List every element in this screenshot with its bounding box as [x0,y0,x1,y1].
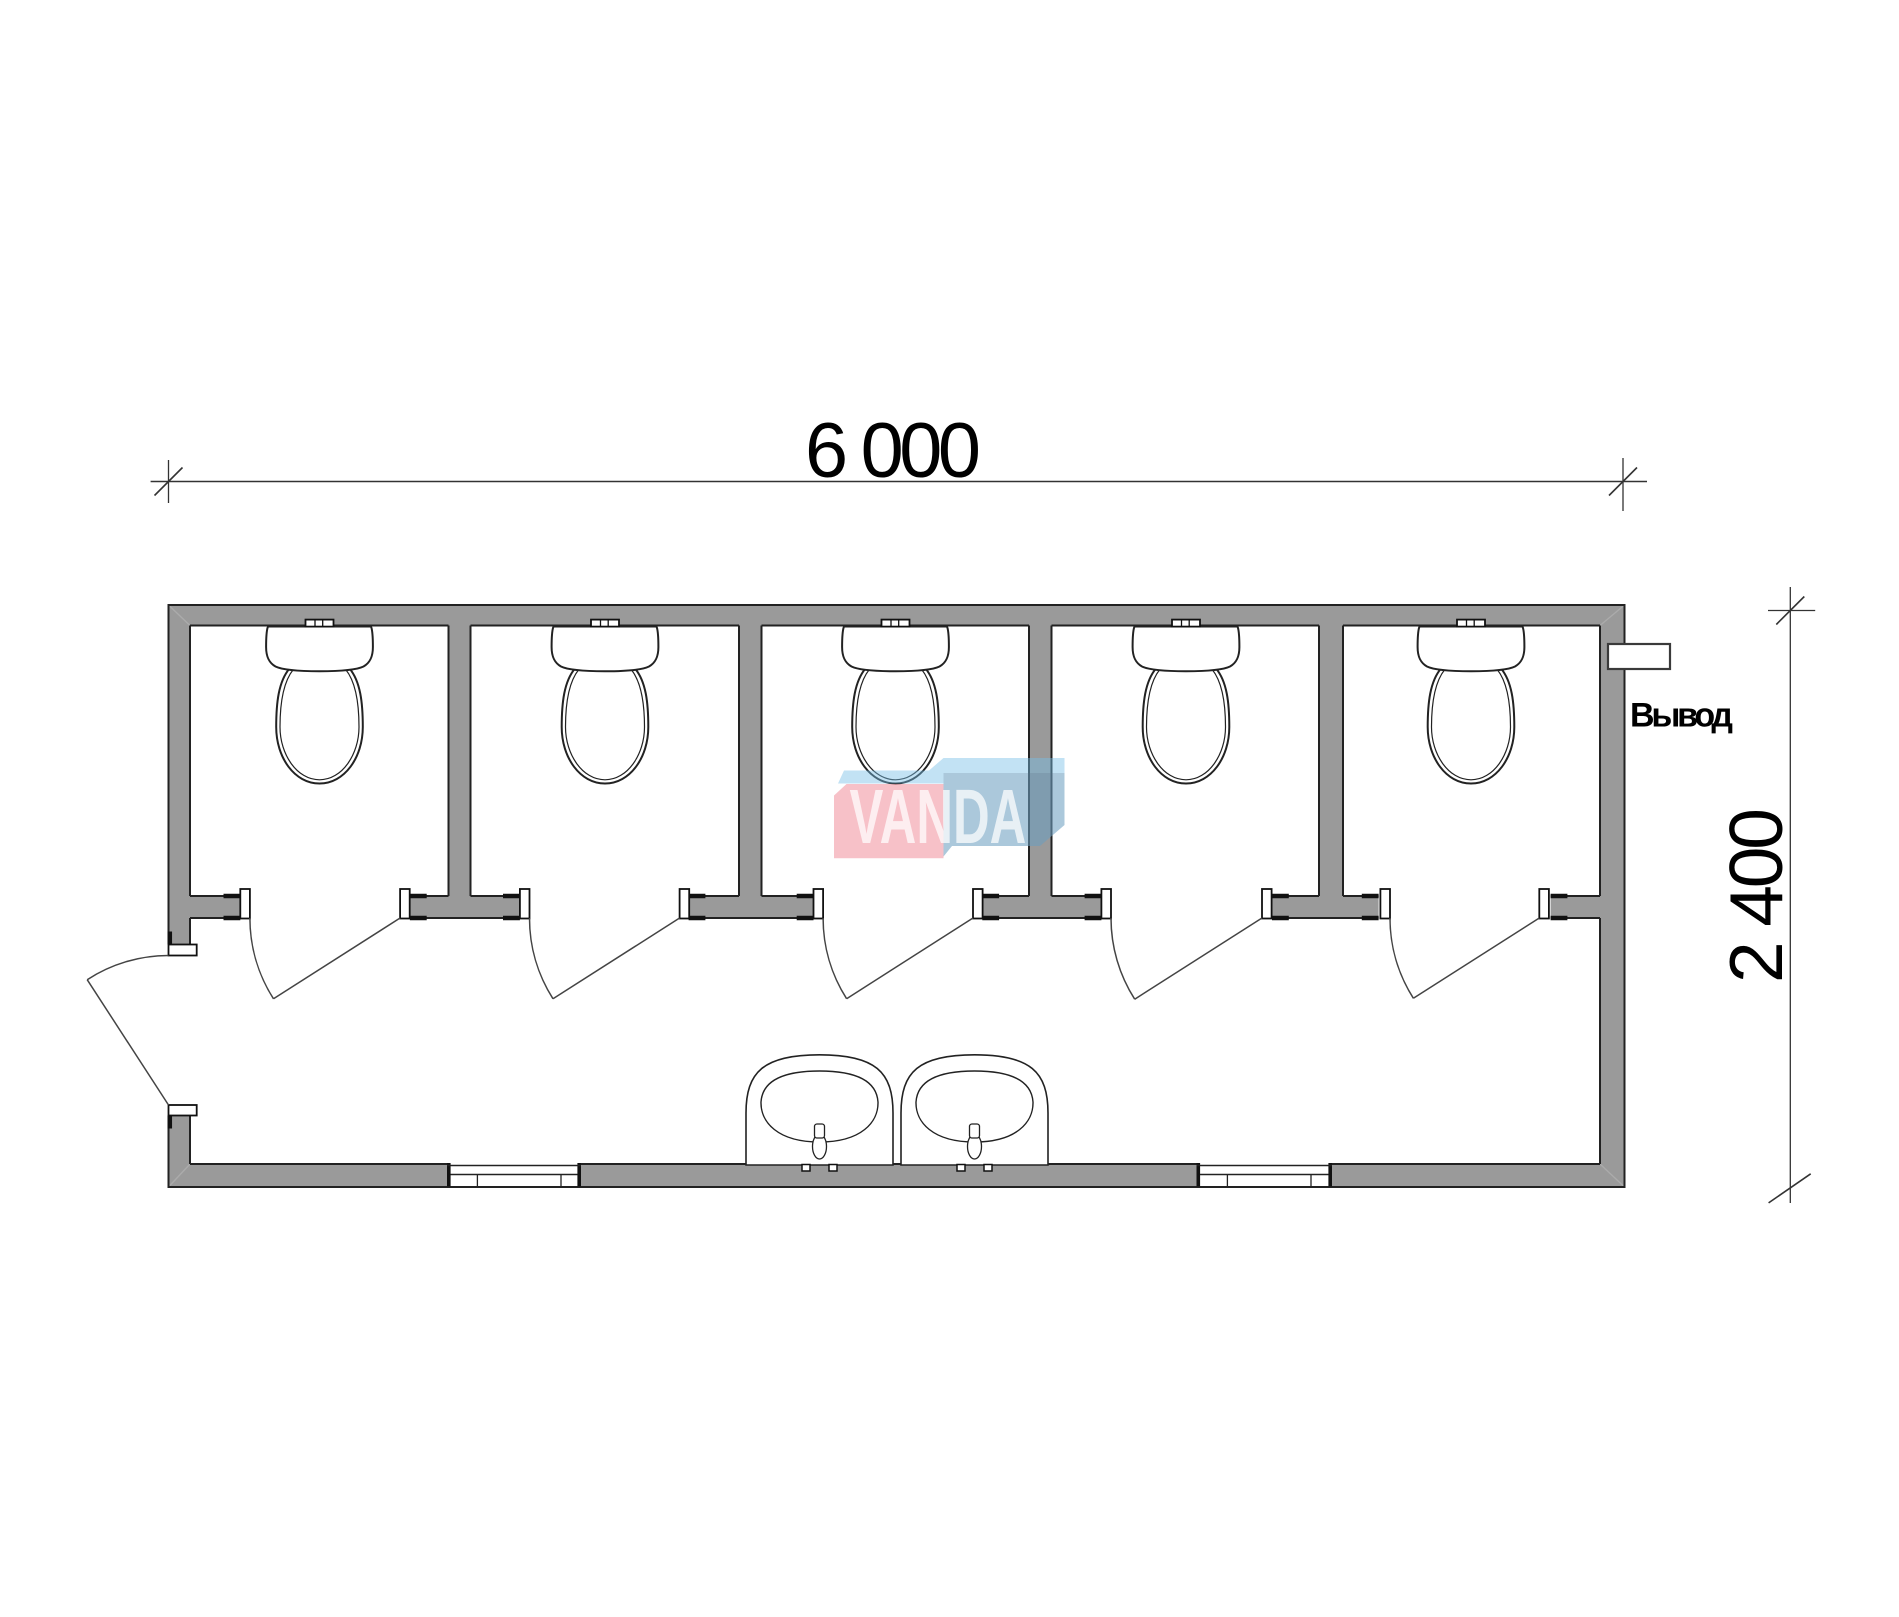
svg-text:6 000: 6 000 [805,408,981,494]
svg-text:VANDA: VANDA [849,773,1027,859]
svg-text:Вывод: Вывод [1630,697,1733,735]
svg-text:2 400: 2 400 [1714,808,1798,983]
